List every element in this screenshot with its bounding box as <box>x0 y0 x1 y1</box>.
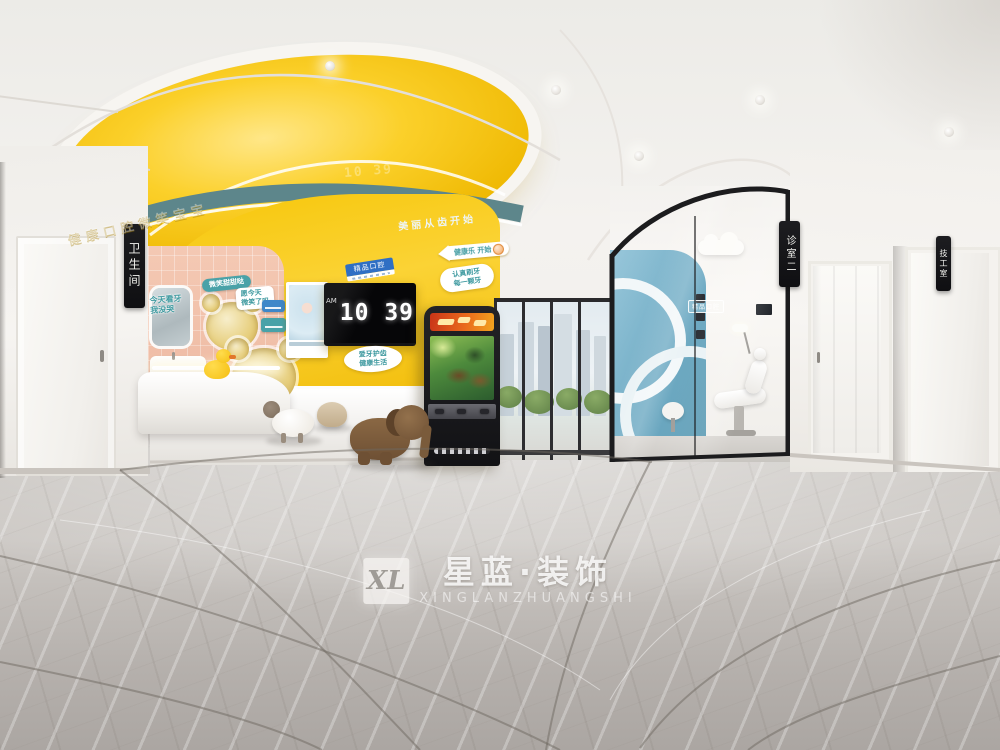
toy-shadow <box>266 436 322 446</box>
window-mullion <box>550 302 553 460</box>
downlight-icon <box>634 151 644 161</box>
arcade-screen <box>430 336 494 400</box>
toy-leg <box>281 433 286 443</box>
tv-meridiem: AM <box>326 297 337 305</box>
poster-image <box>289 285 325 340</box>
dental-lamp-icon <box>732 324 748 332</box>
door-handle-icon <box>817 352 820 363</box>
tv-time: 10 39 <box>340 300 414 326</box>
dental-chair-base <box>734 406 744 432</box>
watermark-text: 星蓝·装饰 XINGLANZHUANGSHI <box>419 556 636 605</box>
faucet-icon <box>172 352 175 360</box>
tooth-mascot-icon <box>493 243 505 255</box>
watermark-brand: 星蓝·装饰 <box>443 556 613 588</box>
arcade-machine <box>424 306 500 466</box>
wall-corner-shadow <box>0 162 6 478</box>
downlight-icon <box>944 127 954 137</box>
window-mullion <box>578 302 581 460</box>
room-floor <box>610 436 790 462</box>
room-wall-sign: 精品口腔 <box>688 300 724 313</box>
consult-room-interior: 精品口腔 <box>610 186 790 462</box>
window-mullion <box>522 302 525 460</box>
panorama-scene: 10 39 卫生间 健康口腔微笑宝宝 美丽从齿开始 精品口腔 今天看牙 我没哭 … <box>0 0 1000 750</box>
monitor-screen <box>756 304 772 315</box>
wall-tv-clock: AM 10 39 <box>324 283 416 346</box>
watermark-logo: XL <box>363 558 409 604</box>
wall-decal-chip <box>261 318 286 332</box>
wall-decal-chip <box>262 300 285 312</box>
poster-caption-bar <box>289 342 325 346</box>
lab-room-sign: 技工室 <box>936 236 951 291</box>
arrow-sign-body: 健康乐 开始 <box>448 241 509 260</box>
wall-frame <box>696 312 705 321</box>
cloud-lamp-icon <box>698 240 744 255</box>
restroom-door-sign: 卫生间 <box>124 224 145 308</box>
window-sill <box>494 450 614 455</box>
toy-leg <box>358 452 370 465</box>
downlight-icon <box>325 61 335 71</box>
door-handle-icon <box>100 350 104 362</box>
dental-lamp-arm <box>743 332 750 354</box>
rubber-duck-toy <box>204 360 230 379</box>
rubber-duck-beak-icon <box>229 355 236 359</box>
wall-decal: 今天看牙 我没哭 <box>149 294 182 316</box>
watermark-logo-text: XL <box>367 566 405 596</box>
wall-frame <box>696 330 705 339</box>
window-city-view <box>494 298 614 460</box>
kids-ottoman <box>317 402 347 427</box>
arcade-control-panel <box>428 404 496 419</box>
arcade-vent <box>434 448 490 454</box>
dental-chair-backrest <box>743 358 769 395</box>
clinic-room-door <box>813 266 881 453</box>
dental-chair-foot <box>726 430 756 436</box>
blue-curved-wall <box>610 250 706 462</box>
watermark-latin: XINGLANZHUANGSHI <box>419 592 636 605</box>
dental-chair-headrest <box>754 348 766 360</box>
baseboard <box>0 468 150 474</box>
downlight-icon <box>551 85 561 95</box>
sheep-plush-toy <box>272 409 314 437</box>
toy-leg <box>380 452 392 465</box>
tree-icon <box>584 390 612 414</box>
badge-text: 健康生活 <box>359 358 387 369</box>
watermark: XL 星蓝·装饰 XINGLANZHUANGSHI <box>363 556 636 605</box>
doctor-stool-leg <box>671 418 675 432</box>
downlight-icon <box>755 95 765 105</box>
toy-leg <box>298 433 303 443</box>
arrow-sign-text: 健康乐 开始 <box>454 244 492 257</box>
clinic-room-2-sign: 诊室二 <box>779 221 800 287</box>
arcade-marquee <box>430 313 494 331</box>
wall-poster <box>286 282 328 358</box>
